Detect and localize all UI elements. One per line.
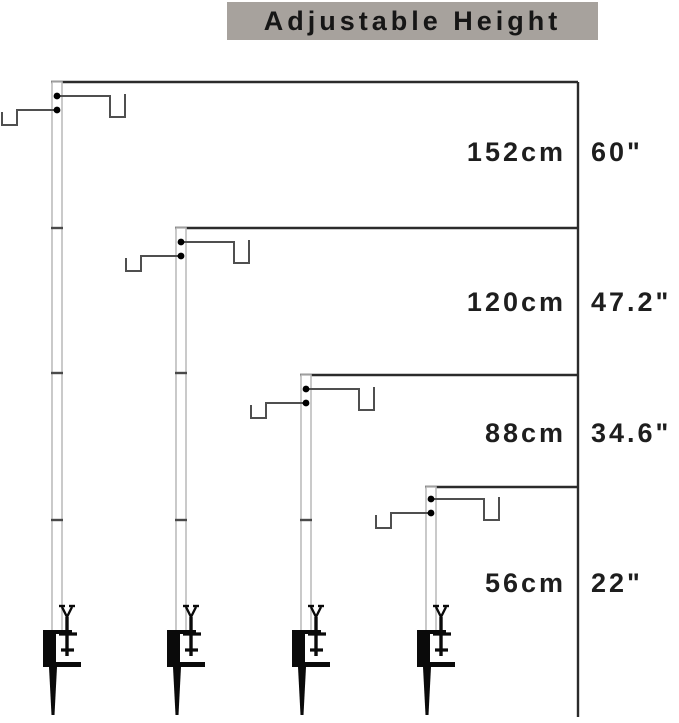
mounting-dot (428, 496, 435, 503)
ground-spike (49, 667, 57, 715)
mounting-dot (54, 107, 61, 114)
left-hook-arm (251, 403, 306, 418)
mounting-dot (303, 400, 310, 407)
height-label-inch-34: 34.6" (591, 413, 677, 453)
ground-spike (423, 667, 431, 715)
right-hook-arm (57, 94, 125, 117)
mounting-dot (178, 239, 185, 246)
height-label-cm-88: 88cm (380, 413, 566, 453)
pole-120cm (126, 228, 249, 715)
left-hook-arm (376, 513, 431, 528)
mounting-dot (54, 93, 61, 100)
height-label-inch-60: 60" (591, 132, 677, 172)
pole-88cm (251, 375, 374, 715)
height-label-inch-22: 22" (591, 563, 677, 603)
adjustable-pole-diagram (0, 0, 679, 723)
left-hook-arm (126, 256, 181, 271)
pole-tube (301, 375, 311, 632)
mounting-dot (178, 253, 185, 260)
ground-spike (298, 667, 306, 715)
pole-tube (52, 82, 62, 632)
pole-tube (176, 228, 186, 632)
right-hook-arm (431, 497, 499, 520)
pole-tube (426, 487, 436, 632)
height-label-cm-120: 120cm (380, 282, 566, 322)
ground-spike (173, 667, 181, 715)
left-hook-arm (2, 110, 57, 125)
pole-152cm (2, 82, 125, 715)
height-label-inch-47: 47.2" (591, 282, 677, 322)
mounting-dot (303, 386, 310, 393)
right-hook-arm (181, 240, 249, 263)
height-label-cm-152: 152cm (380, 132, 566, 172)
mounting-dot (428, 510, 435, 517)
right-hook-arm (306, 387, 374, 410)
product-image: Adjustable Height (0, 0, 679, 723)
height-label-cm-56: 56cm (380, 563, 566, 603)
